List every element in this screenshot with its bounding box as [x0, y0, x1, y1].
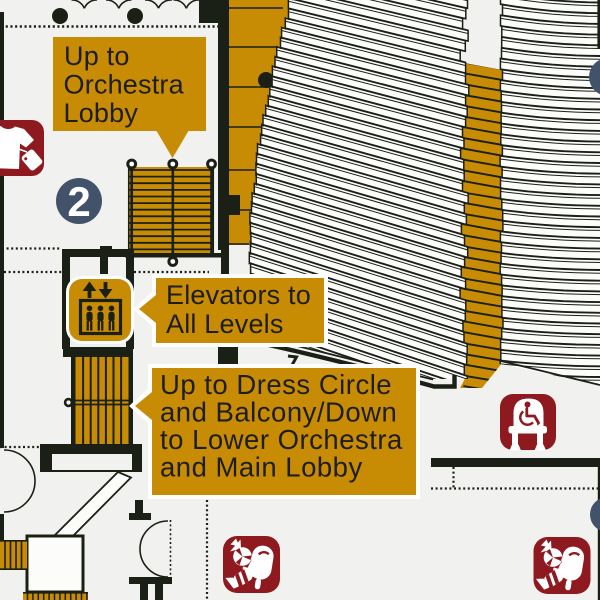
svg-text:to Lower Orchestra: to Lower Orchestra: [160, 424, 403, 455]
svg-text:All Levels: All Levels: [166, 309, 284, 339]
svg-text:Orchestra: Orchestra: [64, 70, 185, 100]
svg-text:and Balcony/Down: and Balcony/Down: [160, 397, 397, 428]
svg-text:Lobby: Lobby: [64, 98, 139, 128]
svg-text:and Main Lobby: and Main Lobby: [160, 452, 363, 483]
svg-text:Elevators to: Elevators to: [166, 280, 311, 310]
svg-text:Up to Dress Circle: Up to Dress Circle: [160, 369, 392, 400]
svg-text:Up to: Up to: [64, 41, 130, 71]
svg-text:2: 2: [67, 178, 90, 225]
